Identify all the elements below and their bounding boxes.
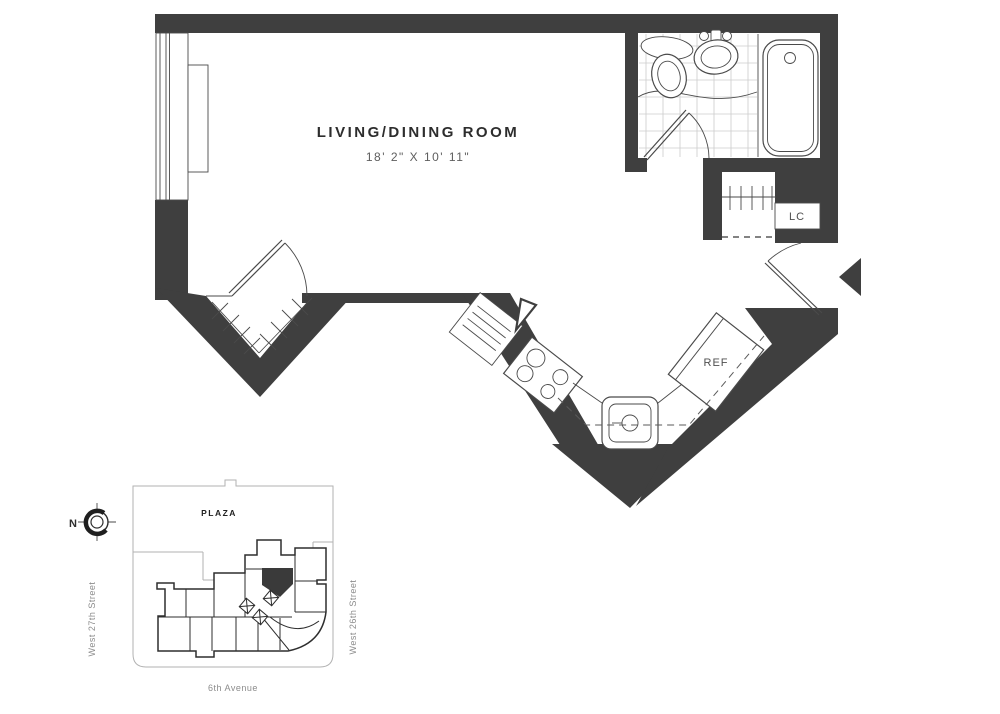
- living-closet-door-leaf: [229, 240, 285, 296]
- floorplan-svg: LC: [0, 0, 1000, 714]
- compass: N: [69, 503, 116, 541]
- wall-bathroom-bottom-right: [703, 158, 820, 172]
- building-outline: [157, 540, 326, 657]
- vanity-counter-edge: [638, 91, 757, 99]
- plaza-label: PLAZA: [201, 508, 237, 518]
- wall-top: [155, 14, 838, 33]
- sink-faucet-right: [723, 32, 732, 41]
- bathroom: [638, 30, 818, 160]
- sink-faucet-left: [700, 32, 709, 41]
- entry-arrow-icon: [839, 258, 861, 296]
- site-map: N PLAZA West 27th Street West 26th Stree…: [69, 480, 358, 693]
- window-frame: [156, 33, 188, 200]
- closet-rod-ticks: [730, 186, 772, 210]
- radiator-box: [188, 65, 208, 172]
- bathtub: [763, 40, 818, 156]
- room-title: LIVING/DINING ROOM: [317, 124, 520, 141]
- avenue-bottom-label: 6th Avenue: [208, 683, 258, 693]
- wall-right-upper: [820, 33, 838, 243]
- entry-door-arc: [768, 243, 801, 261]
- street-left-label: West 27th Street: [87, 582, 97, 657]
- wall-bathroom-bottom-left: [625, 158, 647, 172]
- bath-sink-basin: [692, 37, 740, 77]
- refrigerator-label: REF: [704, 357, 729, 369]
- wall-closet-left-band: [156, 288, 260, 397]
- bathroom-door-leaf: [644, 110, 689, 160]
- entry-door-leaf: [765, 261, 822, 315]
- room-dimensions: 18' 2" X 10' 11": [366, 150, 470, 164]
- entry-door: [765, 243, 822, 315]
- compass-north-label: N: [69, 518, 77, 530]
- street-right-label: West 26th Street: [348, 580, 358, 655]
- window-left: [156, 33, 208, 200]
- kitchen-sink: [602, 397, 658, 449]
- wall-lc-upper-chunk: [775, 172, 820, 203]
- wall-lc-left: [703, 172, 722, 240]
- apartment-plan: LC: [155, 14, 861, 508]
- wall-horizontal-divider: [302, 293, 482, 303]
- wall-closet-right-band: [260, 296, 352, 397]
- wall-lc-lower-bar: [775, 228, 838, 243]
- wall-left-lower: [155, 200, 188, 300]
- living-closet-door-arc: [285, 243, 307, 296]
- linen-closet-label: LC: [789, 211, 805, 223]
- wall-bathroom-left: [625, 33, 638, 160]
- floorplan-page: LC: [0, 0, 1000, 714]
- bathroom-door-arc: [689, 113, 709, 158]
